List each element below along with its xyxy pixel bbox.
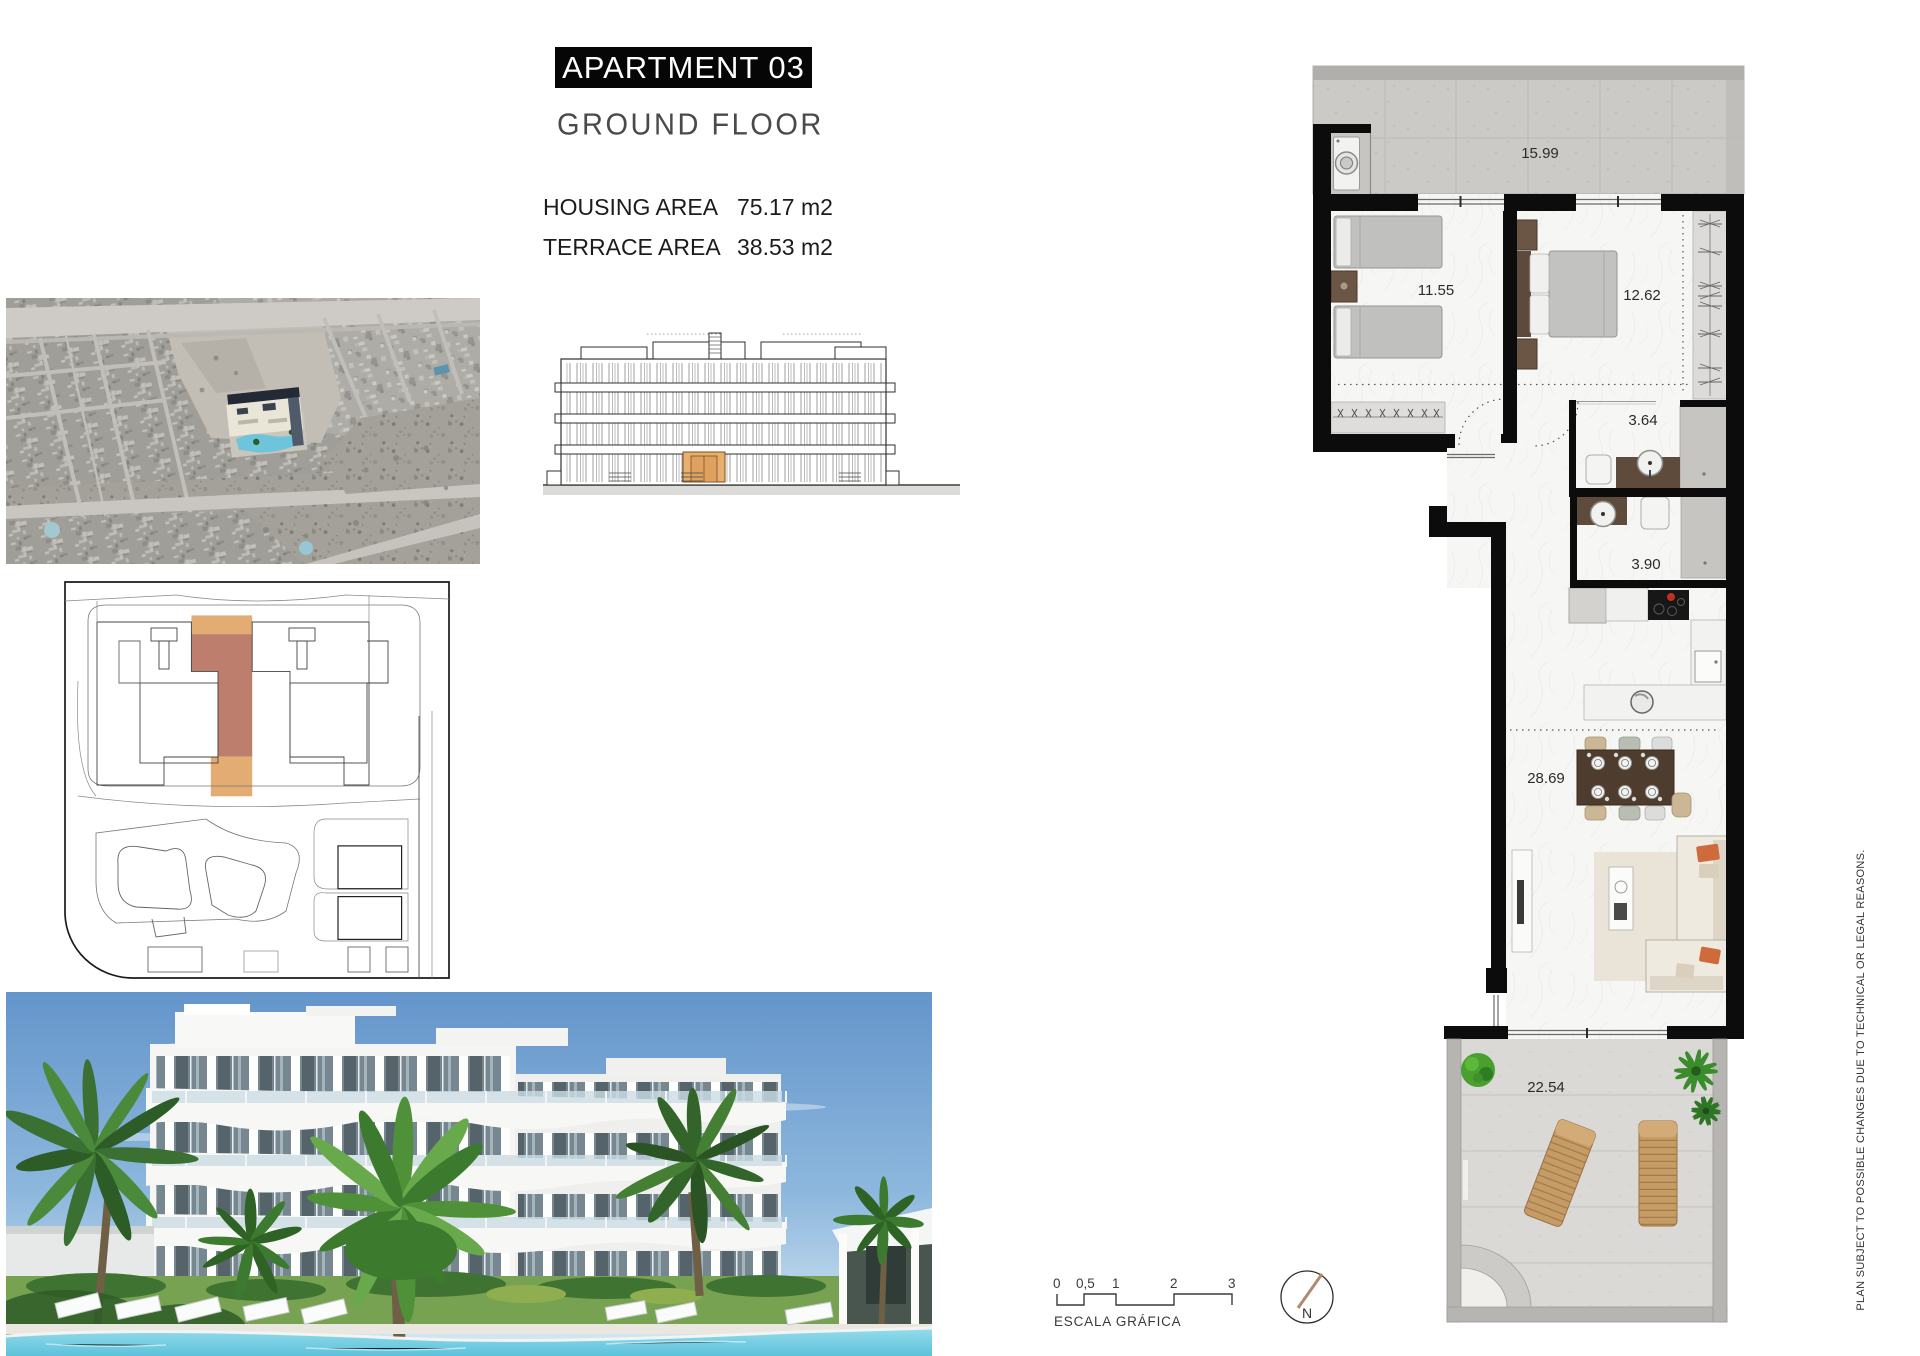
- svg-text:3.64: 3.64: [1628, 412, 1657, 429]
- svg-text:12.62: 12.62: [1623, 287, 1661, 304]
- svg-text:ESCALA GRÁFICA: ESCALA GRÁFICA: [1054, 1314, 1182, 1329]
- svg-text:15.99: 15.99: [1521, 145, 1559, 162]
- svg-text:1: 1: [1112, 1276, 1120, 1291]
- svg-text:2: 2: [1170, 1276, 1178, 1291]
- svg-text:0: 0: [1053, 1276, 1061, 1291]
- svg-text:0,5: 0,5: [1076, 1276, 1095, 1291]
- svg-text:11.55: 11.55: [1418, 282, 1454, 299]
- svg-text:N: N: [1302, 1305, 1312, 1321]
- svg-text:3.90: 3.90: [1631, 556, 1660, 573]
- svg-text:PLAN SUBJECT TO POSSIBLE CHANG: PLAN SUBJECT TO POSSIBLE CHANGES DUE TO …: [1855, 849, 1867, 1310]
- svg-text:22.54: 22.54: [1527, 1079, 1565, 1096]
- svg-text:3: 3: [1228, 1276, 1236, 1291]
- svg-text:28.69: 28.69: [1527, 770, 1565, 787]
